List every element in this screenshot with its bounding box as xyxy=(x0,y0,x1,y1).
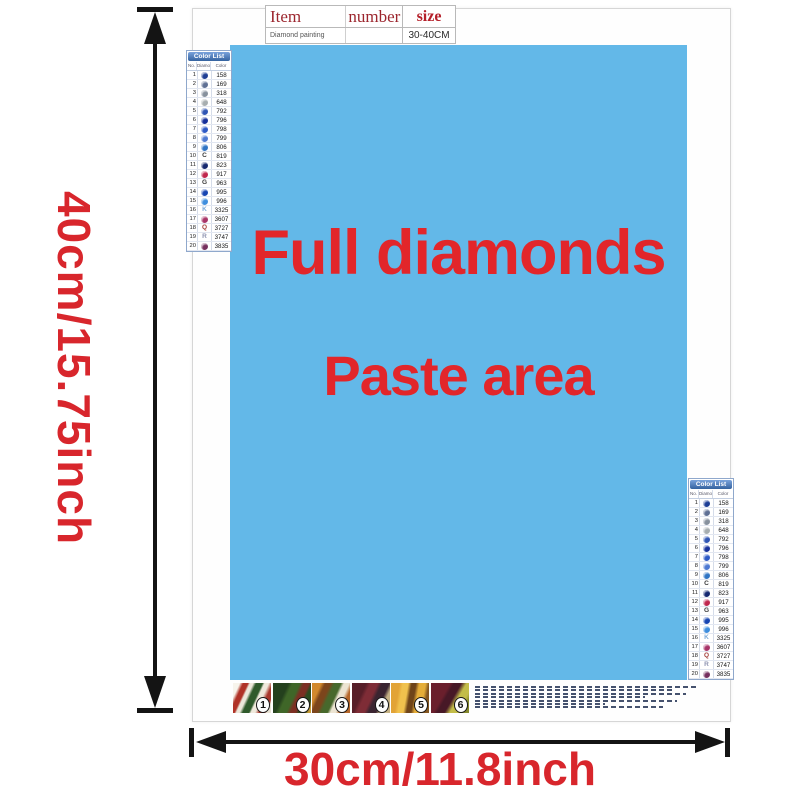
color-list-row: 13G963 xyxy=(689,607,733,616)
color-row-number: 5 xyxy=(187,108,197,114)
color-row-number: 11 xyxy=(187,162,197,168)
color-code: 806 xyxy=(714,572,733,579)
diamond-symbol-icon xyxy=(197,215,212,223)
color-list-row: 3318 xyxy=(187,89,231,98)
step-number-badge: 4 xyxy=(375,697,389,713)
color-list-row: 203835 xyxy=(187,242,231,251)
color-list-row: 4648 xyxy=(689,526,733,535)
color-list-row: 1158 xyxy=(187,71,231,80)
color-list-row: 5792 xyxy=(187,107,231,116)
color-code: 3727 xyxy=(714,653,733,660)
color-row-number: 6 xyxy=(689,545,699,551)
color-row-number: 17 xyxy=(187,216,197,222)
color-code: 823 xyxy=(212,162,231,169)
color-list-title: Color List xyxy=(188,52,230,61)
color-list-row: 11823 xyxy=(187,161,231,170)
diamond-symbol-icon xyxy=(699,508,714,516)
color-code: 3325 xyxy=(714,635,733,642)
color-code: 158 xyxy=(714,500,733,507)
color-row-number: 16 xyxy=(187,207,197,213)
diamond-symbol-icon xyxy=(197,89,212,97)
diamond-symbol-icon xyxy=(699,499,714,507)
step-thumbnail-6: 6 xyxy=(431,683,469,713)
step-number-badge: 5 xyxy=(414,697,428,713)
color-row-number: 7 xyxy=(689,554,699,560)
width-arrow-left-cap xyxy=(189,728,194,757)
color-list-row: 173607 xyxy=(689,643,733,652)
color-list-row: 4648 xyxy=(187,98,231,107)
step-number-badge: 1 xyxy=(256,697,270,713)
color-code: 806 xyxy=(212,144,231,151)
color-code: 996 xyxy=(714,626,733,633)
height-arrow-down-head xyxy=(144,676,166,708)
color-list-row: 203835 xyxy=(689,670,733,679)
step-number-badge: 2 xyxy=(296,697,310,713)
color-list-column-headers: No. Diamond Color xyxy=(689,490,733,499)
color-list-col-diamond: Diamond xyxy=(196,62,211,70)
color-list-col-color: Color xyxy=(211,62,231,70)
color-list-row: 8799 xyxy=(187,134,231,143)
color-code: 819 xyxy=(212,153,231,160)
diamond-symbol-icon: K xyxy=(197,206,212,214)
diamond-symbol-icon xyxy=(197,116,212,124)
step-number-badge: 3 xyxy=(335,697,349,713)
diamond-symbol-icon: C xyxy=(197,152,212,160)
color-row-number: 1 xyxy=(187,72,197,78)
color-list-row: 7798 xyxy=(187,125,231,134)
color-code: 996 xyxy=(212,198,231,205)
color-row-number: 14 xyxy=(187,189,197,195)
color-row-number: 15 xyxy=(689,626,699,632)
color-code: 158 xyxy=(212,72,231,79)
diamond-symbol-icon xyxy=(699,571,714,579)
color-list-row: 2169 xyxy=(689,508,733,517)
diamond-symbol-icon xyxy=(197,161,212,169)
color-list-title: Color List xyxy=(690,480,732,489)
item-number-table: Item number size Diamond painting 30-40C… xyxy=(265,5,456,44)
diamond-symbol-icon xyxy=(699,553,714,561)
color-list-row: 18Q3727 xyxy=(187,224,231,233)
color-list-row: 6796 xyxy=(689,544,733,553)
table-cell-number xyxy=(345,28,402,43)
color-code: 995 xyxy=(714,617,733,624)
color-row-number: 20 xyxy=(187,243,197,249)
diamond-symbol-icon xyxy=(197,125,212,133)
color-list-col-no: No. xyxy=(689,490,698,498)
step-thumbnail-5: 5 xyxy=(391,683,429,713)
table-header-number: number xyxy=(345,6,402,27)
color-row-number: 19 xyxy=(187,234,197,240)
color-code: 799 xyxy=(714,563,733,570)
color-code: 3607 xyxy=(212,216,231,223)
color-row-number: 3 xyxy=(689,518,699,524)
color-row-number: 10 xyxy=(689,581,699,587)
color-code: 796 xyxy=(212,117,231,124)
color-code: 3325 xyxy=(212,207,231,214)
color-row-number: 20 xyxy=(689,671,699,677)
diamond-symbol-icon xyxy=(699,670,714,678)
diamond-symbol-icon xyxy=(197,170,212,178)
color-row-number: 11 xyxy=(689,590,699,596)
color-code: 648 xyxy=(714,527,733,534)
color-list-row: 10C819 xyxy=(689,580,733,589)
color-code: 796 xyxy=(714,545,733,552)
diamond-symbol-icon xyxy=(197,80,212,88)
diamond-symbol-icon xyxy=(197,107,212,115)
paste-area: Full diamonds Paste area xyxy=(230,45,687,680)
color-code: 3747 xyxy=(714,662,733,669)
color-list-col-no: No. xyxy=(187,62,196,70)
color-list-row: 19R3747 xyxy=(689,661,733,670)
step-thumbnail-4: 4 xyxy=(352,683,390,713)
color-row-number: 14 xyxy=(689,617,699,623)
color-row-number: 17 xyxy=(689,644,699,650)
width-dimension-label: 30cm/11.8inch xyxy=(235,742,645,796)
color-list-row: 14995 xyxy=(187,188,231,197)
height-dimension-label: 40cm/15.75inch xyxy=(44,138,104,598)
diamond-symbol-icon: Q xyxy=(699,652,714,660)
color-list-col-diamond: Diamond xyxy=(698,490,713,498)
color-row-number: 1 xyxy=(689,500,699,506)
color-row-number: 2 xyxy=(689,509,699,515)
table-header-item: Item xyxy=(266,6,345,27)
color-list-row: 14995 xyxy=(689,616,733,625)
color-list-col-color: Color xyxy=(713,490,733,498)
color-code: 3835 xyxy=(212,243,231,250)
diamond-symbol-icon xyxy=(699,526,714,534)
color-list-row: 12917 xyxy=(187,170,231,179)
diamond-painting-size-diagram: Item number size Diamond painting 30-40C… xyxy=(0,0,800,800)
color-list-row: 19R3747 xyxy=(187,233,231,242)
color-list-rows: 11582169331846485792679677988799980610C8… xyxy=(689,499,733,679)
diamond-symbol-icon xyxy=(197,71,212,79)
color-list-rows: 11582169331846485792679677988799980610C8… xyxy=(187,71,231,251)
diamond-symbol-icon xyxy=(699,535,714,543)
color-row-number: 19 xyxy=(689,662,699,668)
color-list-row: 15996 xyxy=(187,197,231,206)
color-row-number: 6 xyxy=(187,117,197,123)
color-list-row: 3318 xyxy=(689,517,733,526)
steps-strip: 1 2 3 4 5 6 xyxy=(233,683,469,713)
table-header-size: size xyxy=(402,6,455,27)
table-cell-size: 30-40CM xyxy=(402,28,455,43)
color-list-left: Color List No. Diamond Color 11582169331… xyxy=(186,50,232,252)
width-arrow-right-head xyxy=(695,731,725,753)
color-row-number: 4 xyxy=(689,527,699,533)
color-row-number: 4 xyxy=(187,99,197,105)
color-row-number: 12 xyxy=(187,171,197,177)
color-row-number: 16 xyxy=(689,635,699,641)
color-list-row: 8799 xyxy=(689,562,733,571)
diamond-symbol-icon xyxy=(699,598,714,606)
color-code: 819 xyxy=(714,581,733,588)
paste-area-title: Full diamonds xyxy=(230,217,687,289)
color-list-row: 2169 xyxy=(187,80,231,89)
color-row-number: 5 xyxy=(689,536,699,542)
diamond-symbol-icon xyxy=(699,562,714,570)
color-row-number: 15 xyxy=(187,198,197,204)
color-code: 169 xyxy=(714,509,733,516)
width-arrow-right-cap xyxy=(725,728,730,757)
color-row-number: 7 xyxy=(187,126,197,132)
color-code: 798 xyxy=(212,126,231,133)
diamond-symbol-icon xyxy=(699,517,714,525)
color-list-row: 173607 xyxy=(187,215,231,224)
color-code: 963 xyxy=(714,608,733,615)
color-code: 3607 xyxy=(714,644,733,651)
color-code: 169 xyxy=(212,81,231,88)
color-row-number: 9 xyxy=(689,572,699,578)
step-thumbnail-2: 2 xyxy=(273,683,311,713)
height-arrow-bottom-cap xyxy=(137,708,173,713)
color-row-number: 8 xyxy=(689,563,699,569)
color-code: 3747 xyxy=(212,234,231,241)
height-arrow-shaft xyxy=(153,38,157,680)
color-code: 648 xyxy=(212,99,231,106)
diamond-symbol-icon xyxy=(699,589,714,597)
color-row-number: 10 xyxy=(187,153,197,159)
diamond-symbol-icon: G xyxy=(699,607,714,615)
diamond-symbol-icon: Q xyxy=(197,224,212,232)
color-code: 799 xyxy=(212,135,231,142)
diamond-symbol-icon: G xyxy=(197,179,212,187)
color-list-row: 9806 xyxy=(689,571,733,580)
color-list-row: 12917 xyxy=(689,598,733,607)
table-cell-item: Diamond painting xyxy=(266,28,345,43)
color-row-number: 18 xyxy=(187,225,197,231)
step-thumbnail-3: 3 xyxy=(312,683,350,713)
diamond-symbol-icon xyxy=(197,188,212,196)
color-row-number: 2 xyxy=(187,81,197,87)
diamond-symbol-icon xyxy=(197,242,212,250)
color-list-row: 9806 xyxy=(187,143,231,152)
color-code: 823 xyxy=(714,590,733,597)
color-list-row: 10C819 xyxy=(187,152,231,161)
table-header-row: Item number size xyxy=(266,6,455,28)
color-list-row: 16K3325 xyxy=(689,634,733,643)
color-code: 995 xyxy=(212,189,231,196)
color-list-row: 1158 xyxy=(689,499,733,508)
diamond-symbol-icon: R xyxy=(699,661,714,669)
color-row-number: 3 xyxy=(187,90,197,96)
paste-area-subtitle: Paste area xyxy=(230,343,687,408)
color-row-number: 9 xyxy=(187,144,197,150)
diamond-symbol-icon xyxy=(699,625,714,633)
color-code: 318 xyxy=(212,90,231,97)
diamond-symbol-icon xyxy=(197,143,212,151)
color-list-row: 18Q3727 xyxy=(689,652,733,661)
color-row-number: 12 xyxy=(689,599,699,605)
color-list-row: 11823 xyxy=(689,589,733,598)
color-code: 798 xyxy=(714,554,733,561)
color-list-row: 16K3325 xyxy=(187,206,231,215)
diamond-symbol-icon: R xyxy=(197,233,212,241)
color-code: 3727 xyxy=(212,225,231,232)
diamond-symbol-icon xyxy=(699,544,714,552)
diamond-symbol-icon xyxy=(197,134,212,142)
step-thumbnail-1: 1 xyxy=(233,683,271,713)
color-list-row: 15996 xyxy=(689,625,733,634)
color-code: 963 xyxy=(212,180,231,187)
diamond-symbol-icon xyxy=(197,197,212,205)
color-list-row: 5792 xyxy=(689,535,733,544)
color-code: 3835 xyxy=(714,671,733,678)
color-code: 318 xyxy=(714,518,733,525)
instructions-text xyxy=(475,686,699,710)
step-number-badge: 6 xyxy=(454,697,468,713)
color-row-number: 8 xyxy=(187,135,197,141)
diamond-symbol-icon: K xyxy=(699,634,714,642)
color-row-number: 13 xyxy=(187,180,197,186)
diamond-symbol-icon xyxy=(197,98,212,106)
color-list-row: 6796 xyxy=(187,116,231,125)
color-row-number: 18 xyxy=(689,653,699,659)
diamond-symbol-icon: C xyxy=(699,580,714,588)
color-code: 792 xyxy=(212,108,231,115)
color-list-row: 7798 xyxy=(689,553,733,562)
table-data-row: Diamond painting 30-40CM xyxy=(266,28,455,43)
color-list-column-headers: No. Diamond Color xyxy=(187,62,231,71)
diamond-symbol-icon xyxy=(699,616,714,624)
color-list-row: 13G963 xyxy=(187,179,231,188)
color-code: 917 xyxy=(714,599,733,606)
color-row-number: 13 xyxy=(689,608,699,614)
color-code: 792 xyxy=(714,536,733,543)
color-code: 917 xyxy=(212,171,231,178)
color-list-right: Color List No. Diamond Color 11582169331… xyxy=(688,478,734,680)
diamond-symbol-icon xyxy=(699,643,714,651)
